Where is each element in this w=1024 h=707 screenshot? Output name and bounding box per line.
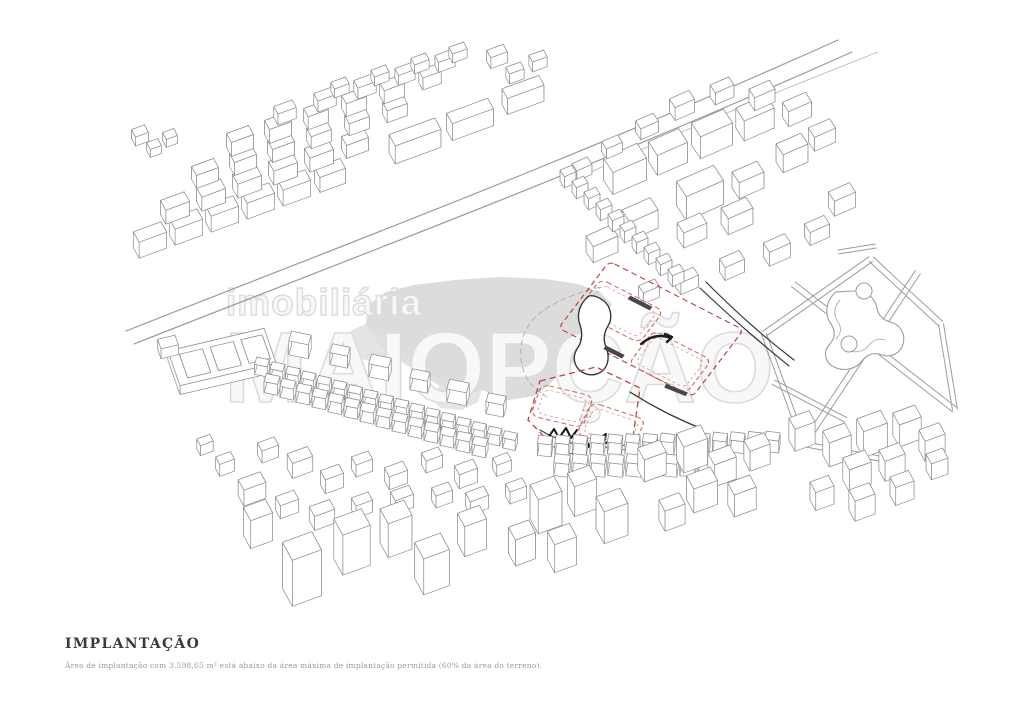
building-face	[590, 434, 605, 444]
building-face	[730, 432, 745, 442]
building-face	[660, 433, 675, 443]
building-face	[625, 442, 639, 456]
footprint-outer	[531, 384, 594, 428]
proposed-site-upper-parcel	[521, 261, 794, 397]
building-face	[608, 454, 624, 465]
drawing-caption: Área de implantação com 3.598,65 m² está…	[65, 661, 765, 670]
building-footprint	[531, 384, 594, 428]
building-face	[608, 463, 623, 478]
building-face	[537, 435, 552, 445]
proposed-building-outline	[574, 296, 611, 375]
building-face	[590, 454, 606, 465]
existing-buildings-southeast	[789, 405, 948, 521]
building-face	[554, 454, 570, 465]
existing-buildings-south	[197, 425, 780, 606]
site-plan-drawing	[0, 0, 1024, 707]
building-face	[554, 463, 569, 478]
footprint-inner	[537, 389, 588, 423]
building-face	[572, 435, 587, 445]
park-path-edge	[873, 257, 943, 322]
site-road-edge	[706, 282, 794, 360]
building-face	[555, 435, 570, 445]
drawing-title: IMPLANTAÇÃO	[65, 636, 765, 652]
existing-buildings-northwest	[132, 42, 547, 258]
terraced-street	[255, 331, 518, 458]
park-circle	[856, 283, 872, 299]
park-circle	[841, 336, 857, 352]
site-road-edge	[700, 288, 789, 366]
building-face	[625, 434, 640, 444]
site-plan-page: imobiliária MAIOPÇÃO IMPLANTAÇÃO Área de…	[0, 0, 1024, 707]
footprint-inner	[635, 336, 704, 388]
title-block: IMPLANTAÇÃO Área de implantação com 3.59…	[65, 636, 765, 670]
building-face	[572, 454, 588, 465]
building-face	[607, 434, 622, 444]
building-face	[712, 432, 727, 442]
existing-buildings-northeast	[560, 77, 856, 304]
building-face	[537, 443, 551, 457]
site-road-edge	[630, 392, 700, 428]
